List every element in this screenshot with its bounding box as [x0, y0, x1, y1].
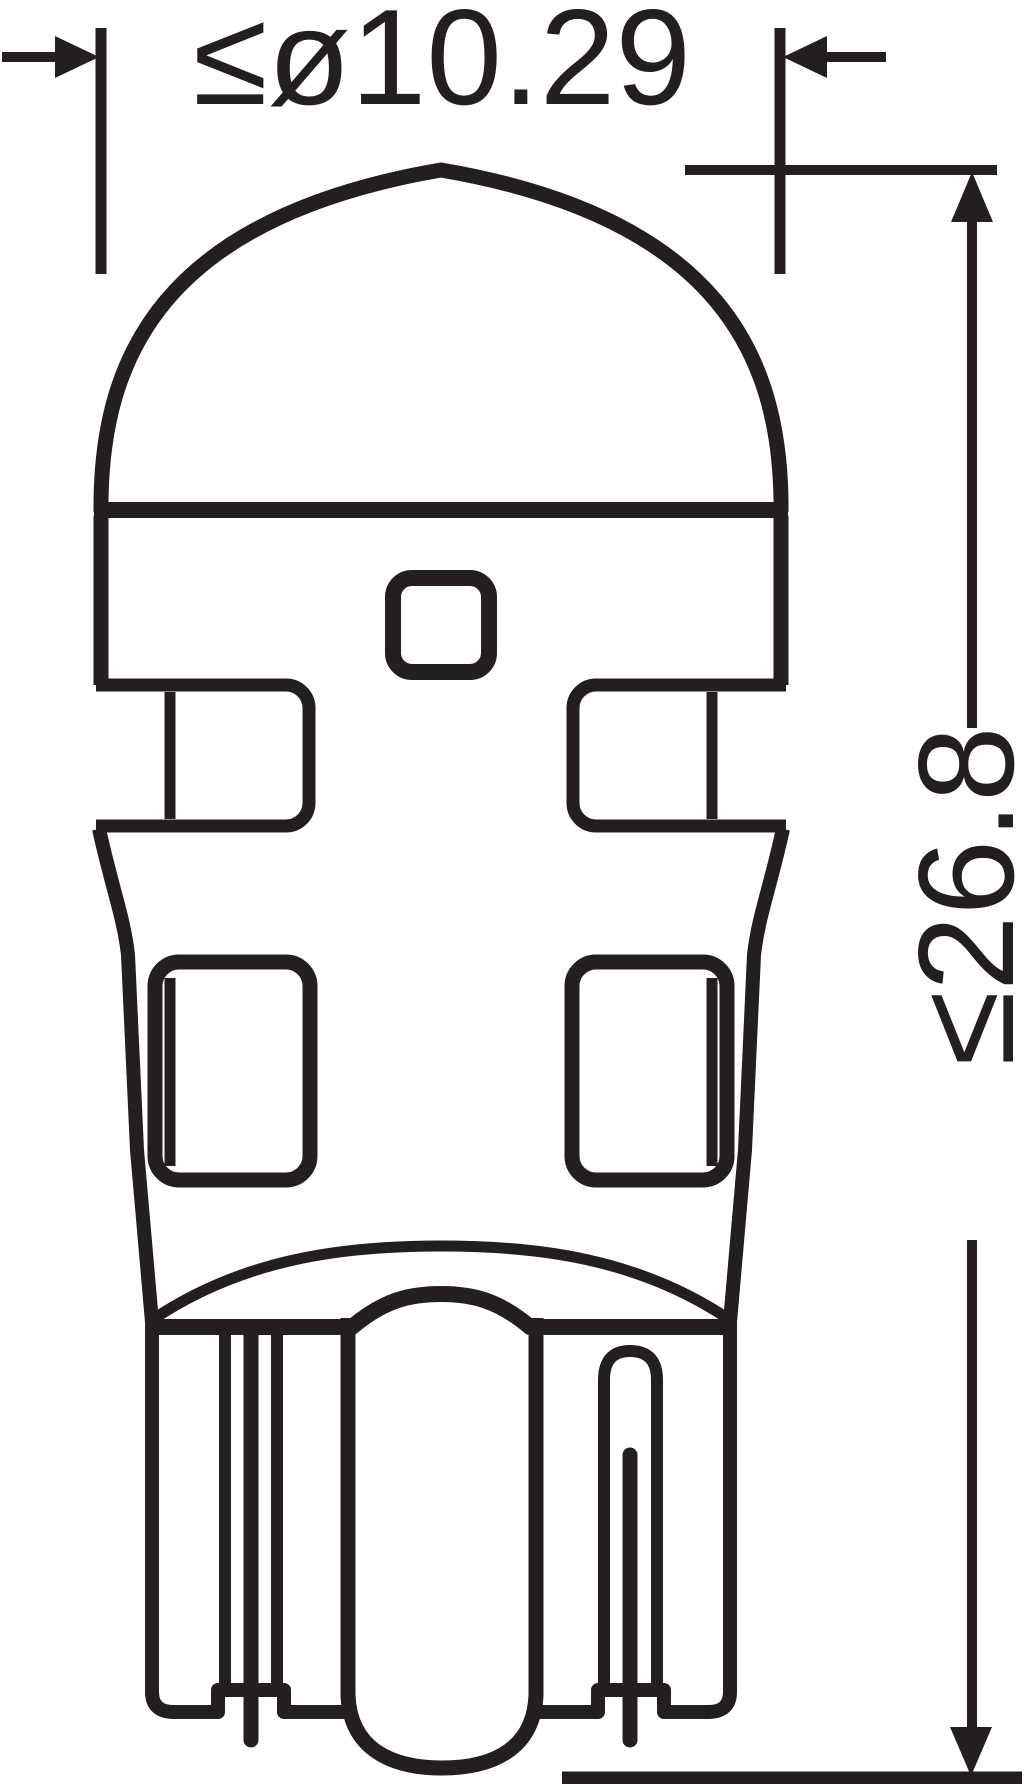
- wedge-glass-arc: [152, 1246, 730, 1320]
- tab-right: [573, 685, 786, 826]
- arrowhead-left-icon: [55, 36, 99, 78]
- glass-pinch-and-nub: [348, 1318, 536, 1768]
- center-square-detail: [393, 578, 489, 672]
- arrowhead-up-icon: [951, 172, 993, 222]
- technical-drawing-page: ≤ø10.29 ≤26.8: [0, 0, 1024, 1784]
- arrowhead-right-icon: [783, 36, 827, 78]
- diameter-dimension-label: ≤ø10.29: [193, 0, 691, 133]
- led-window-right: [572, 962, 727, 1180]
- dome-outline: [101, 170, 781, 512]
- height-dimension-label: ≤26.8: [890, 726, 1024, 1065]
- bulb-dimension-drawing: ≤ø10.29 ≤26.8: [0, 0, 1024, 1784]
- arrowhead-down-icon: [950, 1727, 992, 1776]
- base-top-band: [152, 1294, 730, 1327]
- tab-left: [96, 685, 309, 826]
- arrowheads-group: [55, 36, 993, 1776]
- led-window-left: [155, 962, 310, 1180]
- bulb-outline-group: [94, 170, 788, 1768]
